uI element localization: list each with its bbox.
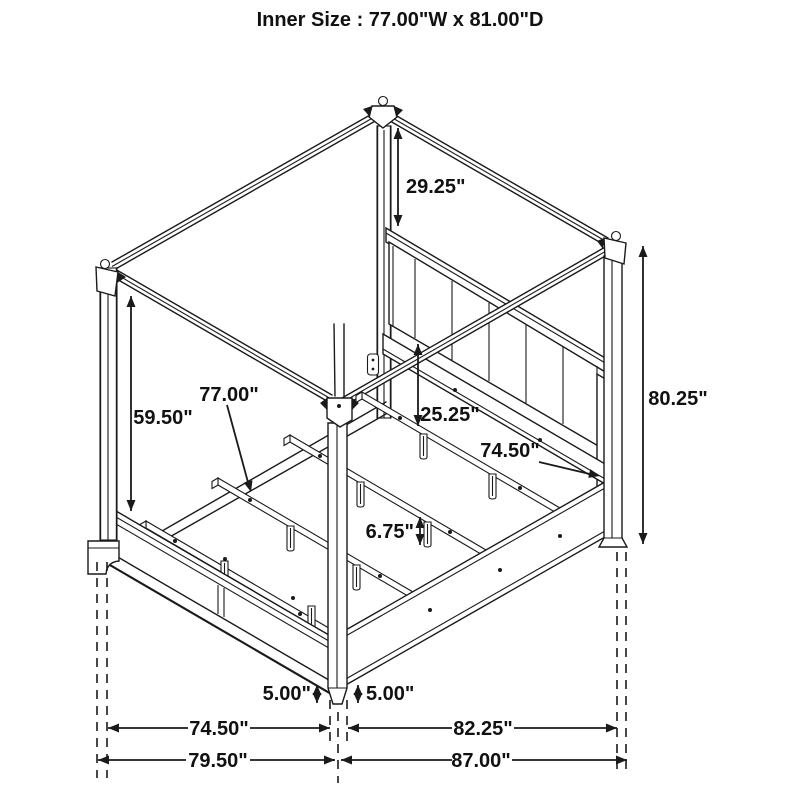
dim-footboard-to-canopy: 59.50" [127,296,193,511]
dim-label: 74.50" [189,718,249,740]
dim-clearance-left: 5.00" [263,683,322,705]
left-post [88,268,119,574]
dim-label: 80.25" [648,388,708,410]
dim-label: 74.50" [480,440,540,462]
diagram-page: Inner Size : 77.00"W x 81.00"D [0,0,800,800]
dim-slat-leg-height: 6.75" [366,517,425,545]
canopy-bed-diagram: Inner Size : 77.00"W x 81.00"D [0,0,800,800]
dim-label: 82.25" [453,718,513,740]
dim-label: 59.50" [133,407,193,429]
dim-label: 25.25" [420,404,480,426]
dim-label: 79.50" [188,750,248,772]
rail-bracket [368,354,379,375]
dim-depth-overall: 87.00" [341,750,627,772]
dim-label: 5.00" [263,683,311,705]
page-title: Inner Size : 77.00"W x 81.00"D [257,9,544,31]
dim-width-inner: 74.50" [108,718,330,740]
canopy-corner-front [320,398,359,427]
dim-label: 29.25" [406,176,466,198]
dim-label: 87.00" [451,750,511,772]
left-post-foot [88,541,119,574]
front-post [328,324,347,704]
dim-width-overall: 79.50" [98,750,335,772]
dim-clearance-right: 5.00" [354,683,415,705]
dim-label: 6.75" [366,521,414,543]
dim-slat-width: 77.00" [199,384,259,492]
dim-overall-height: 80.25" [639,246,708,544]
dim-depth-inner: 82.25" [348,718,617,740]
dim-label: 77.00" [199,384,259,406]
right-side-rail [337,478,612,690]
dim-label: 5.00" [366,683,414,705]
